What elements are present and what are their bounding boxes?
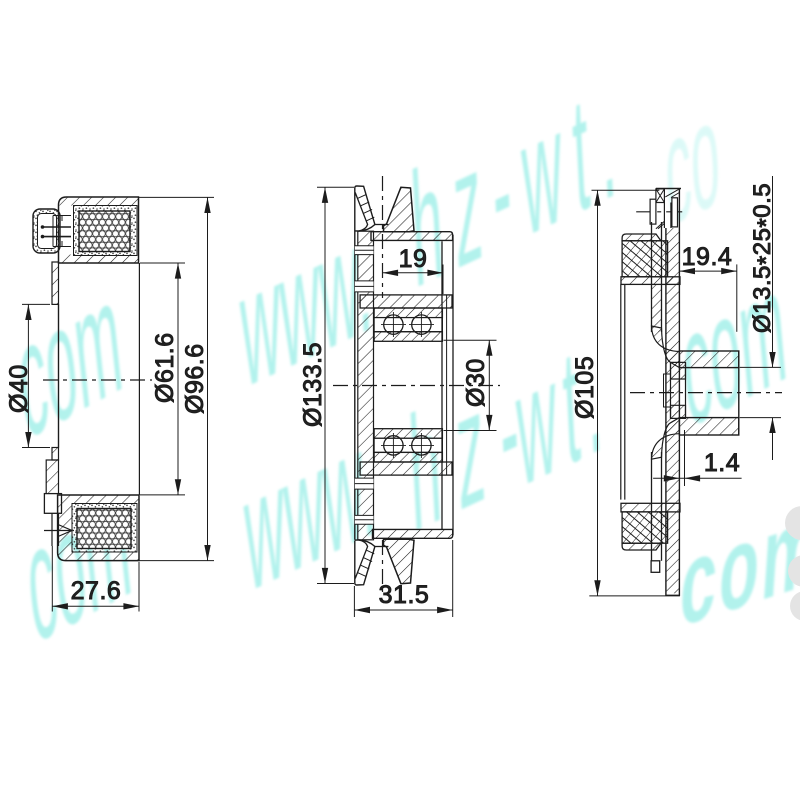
svg-text:Ø40: Ø40 [5,364,33,413]
svg-text:1.4: 1.4 [704,449,740,477]
svg-text:Ø61.6: Ø61.6 [151,332,179,403]
svg-text:19: 19 [399,245,428,273]
svg-text:Ø105: Ø105 [571,356,599,419]
svg-text:27.6: 27.6 [71,577,122,605]
svg-text:31.5: 31.5 [379,581,430,609]
svg-text:Ø30: Ø30 [462,358,490,407]
svg-text:Ø13.5*25*0.5: Ø13.5*25*0.5 [749,183,780,333]
svg-text:Ø133.5: Ø133.5 [299,342,327,427]
svg-text:Ø96.6: Ø96.6 [181,343,209,414]
svg-text:19.4: 19.4 [682,243,733,271]
